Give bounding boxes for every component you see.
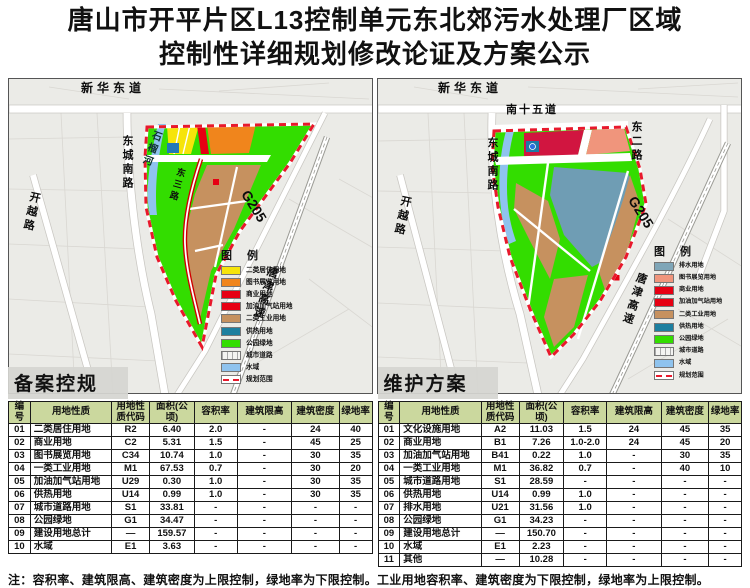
- legend-revised-plan: 图 例 排水用地图书展览用地商业用地加油加气站用地二类工业用地供热用地公园绿地城…: [654, 247, 742, 384]
- column-header: 容积率: [564, 401, 607, 424]
- table-cell: -: [194, 528, 237, 541]
- table-cell: 1.5: [564, 424, 607, 437]
- footnote: 注：容积率、建筑限高、建筑密度为上限控制，绿地率为下限控制。工业用地容积率、建筑…: [8, 571, 742, 588]
- table-cell: -: [709, 541, 742, 554]
- table-cell: -: [661, 476, 709, 489]
- table-cell: -: [237, 541, 292, 554]
- legend-item: 排水用地: [654, 262, 742, 271]
- table-cell: 07: [378, 502, 400, 515]
- table-cell: -: [339, 515, 372, 528]
- column-header: 编号: [378, 401, 400, 424]
- legend-label: 二类工业用地: [246, 316, 286, 323]
- legend-item: 城市道路: [221, 351, 367, 360]
- table-cell: -: [661, 541, 709, 554]
- table-cell: -: [661, 515, 709, 528]
- table-cell: -: [292, 541, 340, 554]
- table-cell: M1: [112, 463, 150, 476]
- table-cell: -: [607, 554, 662, 567]
- table-cell: 2.0: [194, 424, 237, 437]
- table-cell: 10.74: [150, 450, 195, 463]
- pump-station-marker: [530, 143, 536, 149]
- legend-item: 二类工业用地: [654, 310, 742, 319]
- table-cell: 35: [709, 424, 742, 437]
- legend-swatch-icon: [654, 274, 674, 283]
- table-cell: 20: [709, 437, 742, 450]
- table-cell: -: [339, 528, 372, 541]
- road-label-dongcheng-south: 东城南路: [486, 137, 497, 193]
- table-row: 04一类工业用地M167.530.7-3020: [9, 463, 373, 476]
- table-row: 07排水用地U2131.561.0---: [378, 502, 742, 515]
- table-row: 03图书展览用地C3410.741.0-3035: [9, 450, 373, 463]
- table-cell: 11: [378, 554, 400, 567]
- table-cell: -: [292, 528, 340, 541]
- table-cell: 07: [9, 502, 31, 515]
- table-row: 03加油加气站用地B410.221.0-3035: [378, 450, 742, 463]
- table-cell: 34.47: [150, 515, 195, 528]
- table-cell: G1: [481, 515, 519, 528]
- column-header: 面积(公顷): [519, 401, 564, 424]
- table-cell: E1: [481, 541, 519, 554]
- table-cell: 09: [378, 528, 400, 541]
- table-cell: 24: [607, 424, 662, 437]
- column-header: 建筑密度: [661, 401, 709, 424]
- table-cell: -: [237, 437, 292, 450]
- table-cell: -: [194, 541, 237, 554]
- table-cell: 0.99: [519, 489, 564, 502]
- table-title-filed-plan: 备案控规: [8, 367, 128, 399]
- legend-item: 公园绿地: [654, 335, 742, 344]
- table-cell: 35: [339, 450, 372, 463]
- legend-label: 公园绿地: [246, 340, 273, 347]
- table-cell: 31.56: [519, 502, 564, 515]
- table-cell: 45: [661, 437, 709, 450]
- legend-label: 二类工业用地: [679, 312, 716, 318]
- table-cell: 04: [9, 463, 31, 476]
- legend-label: 二类居住用地: [246, 267, 286, 274]
- table-cell: -: [194, 502, 237, 515]
- table-title-revised-plan: 维护方案: [378, 367, 498, 399]
- table-cell: 图书展览用地: [30, 450, 111, 463]
- legend-swatch-icon: [654, 286, 674, 295]
- legend-label: 排水用地: [679, 263, 704, 269]
- table-cell: E1: [112, 541, 150, 554]
- table-row: 02商业用地C25.311.5-4525: [9, 437, 373, 450]
- table-cell: -: [194, 515, 237, 528]
- table-cell: 0.7: [564, 463, 607, 476]
- table-cell: -: [607, 450, 662, 463]
- table-cell: 1.0: [194, 489, 237, 502]
- table-cell: 一类工业用地: [30, 463, 111, 476]
- legend-swatch-icon: [654, 323, 674, 332]
- legend-label: 城市道路: [246, 352, 273, 359]
- page-title-line2: 控制性详细规划修改论证及方案公示: [0, 38, 750, 72]
- table-cell: 建设用地总计: [30, 528, 111, 541]
- column-header: 用地性质: [400, 401, 481, 424]
- table-cell: -: [237, 450, 292, 463]
- table-cell: -: [564, 515, 607, 528]
- legend-swatch-icon: [221, 290, 241, 299]
- legend-label: 图书展览用地: [679, 275, 716, 281]
- column-header: 建筑密度: [292, 401, 340, 424]
- legend-item: 加油加气站用地: [221, 302, 367, 311]
- table-cell: -: [564, 528, 607, 541]
- table-cell: 05: [9, 476, 31, 489]
- column-header: 容积率: [194, 401, 237, 424]
- table-cell: -: [237, 424, 292, 437]
- legend-swatch-icon: [654, 335, 674, 344]
- table-cell: 01: [378, 424, 400, 437]
- table-cell: 09: [9, 528, 31, 541]
- table-cell: -: [237, 515, 292, 528]
- table-cell: 1.0: [194, 476, 237, 489]
- table-cell: 150.70: [519, 528, 564, 541]
- table-cell: -: [292, 502, 340, 515]
- table-cell: 商业用地: [400, 437, 481, 450]
- table-cell: -: [661, 528, 709, 541]
- table-cell: 02: [9, 437, 31, 450]
- table-cell: 6.40: [150, 424, 195, 437]
- table-cell: 34.23: [519, 515, 564, 528]
- table-cell: 加油加气站用地: [30, 476, 111, 489]
- table-cell: -: [237, 476, 292, 489]
- table-cell: -: [237, 463, 292, 476]
- legend-item: 图书展览用地: [221, 278, 367, 287]
- road-label-xinhua-east: 新华东道: [438, 82, 502, 94]
- table-row: 11其他—10.28----: [378, 554, 742, 567]
- table-header-row: 编号用地性质用地性质代码面积(公顷)容积率建筑限高建筑密度绿地率: [9, 401, 373, 424]
- legend-item: 图书展览用地: [654, 274, 742, 283]
- table-cell: 10: [9, 541, 31, 554]
- table-cell: 商业用地: [30, 437, 111, 450]
- legend-label: 公园绿地: [679, 336, 704, 342]
- table-cell: -: [607, 515, 662, 528]
- map-revised-plan: 新华东道 南十五道 东二路 东城南路 开越路 G205 唐津高速 图 例 排水用…: [377, 78, 742, 394]
- table-cell: —: [112, 528, 150, 541]
- table-cell: 30: [292, 463, 340, 476]
- column-header: 绿地率: [339, 401, 372, 424]
- legend-items: 排水用地图书展览用地商业用地加油加气站用地二类工业用地供热用地公园绿地城市道路水…: [654, 262, 742, 381]
- table-cell: 一类工业用地: [400, 463, 481, 476]
- table-cell: -: [709, 489, 742, 502]
- legend-label: 图书展览用地: [246, 279, 286, 286]
- table-cell: C2: [112, 437, 150, 450]
- maps-row: 新华东道 东城南路 石榴河 东三路 开越路 G205 唐津高速 图 例 二类居住…: [8, 78, 742, 394]
- table-cell: -: [339, 541, 372, 554]
- table-cell: 30: [292, 450, 340, 463]
- table-cell: 供热用地: [30, 489, 111, 502]
- table-row: 09建设用地总计—159.57----: [9, 528, 373, 541]
- table-cell: -: [607, 489, 662, 502]
- table-cell: -: [607, 528, 662, 541]
- legend-swatch-icon: [221, 278, 241, 287]
- page-title: 唐山市开平片区L13控制单元东北郊污水处理厂区域 控制性详细规划修改论证及方案公…: [0, 4, 750, 72]
- legend-label: 商业用地: [679, 287, 704, 293]
- table-row: 09建设用地总计—150.70----: [378, 528, 742, 541]
- table-cell: 35: [339, 489, 372, 502]
- table-row: 04一类工业用地M136.820.7-4010: [378, 463, 742, 476]
- table-cell: -: [607, 476, 662, 489]
- table-cell: 33.81: [150, 502, 195, 515]
- table-cell: 30: [661, 450, 709, 463]
- table-cell: 10.28: [519, 554, 564, 567]
- table-cell: 30: [292, 489, 340, 502]
- legend-item: 公园绿地: [221, 339, 367, 348]
- table-cell: 1.5: [194, 437, 237, 450]
- table-cell: 水域: [30, 541, 111, 554]
- table-row: 10水域E12.23----: [378, 541, 742, 554]
- table-cell: R2: [112, 424, 150, 437]
- table-cell: 159.57: [150, 528, 195, 541]
- table-cell: S1: [481, 476, 519, 489]
- table-cell: 30: [292, 476, 340, 489]
- table-cell: 36.82: [519, 463, 564, 476]
- table-cell: U29: [112, 476, 150, 489]
- table-row: 05加油加气站用地U290.301.0-3035: [9, 476, 373, 489]
- table-cell: 0.99: [150, 489, 195, 502]
- table-header-row: 编号用地性质用地性质代码面积(公顷)容积率建筑限高建筑密度绿地率: [378, 401, 742, 424]
- table-row: 02商业用地B17.261.0-2.0244520: [378, 437, 742, 450]
- table-cell: 02: [378, 437, 400, 450]
- table-cell: -: [564, 554, 607, 567]
- table-cell: 25: [339, 437, 372, 450]
- table-cell: 1.0: [194, 450, 237, 463]
- legend-label: 商业用地: [246, 291, 273, 298]
- table-cell: 40: [661, 463, 709, 476]
- table-cell: 28.59: [519, 476, 564, 489]
- table-cell: 其他: [400, 554, 481, 567]
- table-cell: 1.0-2.0: [564, 437, 607, 450]
- table-cell: U21: [481, 502, 519, 515]
- page-title-line1: 唐山市开平片区L13控制单元东北郊污水处理厂区域: [0, 4, 750, 38]
- column-header: 绿地率: [709, 401, 742, 424]
- table-cell: -: [661, 502, 709, 515]
- table-cell: 40: [339, 424, 372, 437]
- table-cell: B1: [481, 437, 519, 450]
- tables-row: 备案控规 编号用地性质用地性质代码面积(公顷)容积率建筑限高建筑密度绿地率 01…: [8, 367, 742, 568]
- table-cell: 08: [9, 515, 31, 528]
- map-filed-plan: 新华东道 东城南路 石榴河 东三路 开越路 G205 唐津高速 图 例 二类居住…: [8, 78, 373, 394]
- table-row: 06供热用地U140.991.0---: [378, 489, 742, 502]
- table-cell: -: [709, 554, 742, 567]
- legend-swatch-icon: [221, 302, 241, 311]
- page: 唐山市开平片区L13控制单元东北郊污水处理厂区域 控制性详细规划修改论证及方案公…: [0, 4, 750, 588]
- table-cell: 2.23: [519, 541, 564, 554]
- legend-swatch-icon: [654, 310, 674, 319]
- table-row: 08公园绿地G134.23----: [378, 515, 742, 528]
- table-cell: -: [292, 515, 340, 528]
- table-cell: -: [237, 528, 292, 541]
- legend-swatch-icon: [654, 347, 674, 356]
- table-cell: 35: [709, 450, 742, 463]
- column-header: 面积(公顷): [150, 401, 195, 424]
- column-header: 用地性质代码: [481, 401, 519, 424]
- table-cell: 建设用地总计: [400, 528, 481, 541]
- table-cell: C34: [112, 450, 150, 463]
- table-row: 01二类居住用地R26.402.0-2440: [9, 424, 373, 437]
- column-header: 编号: [9, 401, 31, 424]
- table-cell: S1: [112, 502, 150, 515]
- table-cell: 01: [9, 424, 31, 437]
- legend-item: 二类工业用地: [221, 314, 367, 323]
- table-cell: -: [237, 502, 292, 515]
- table-cell: 5.31: [150, 437, 195, 450]
- legend-swatch-icon: [221, 351, 241, 360]
- filed-plan-section: 备案控规 编号用地性质用地性质代码面积(公顷)容积率建筑限高建筑密度绿地率 01…: [8, 367, 373, 568]
- table-cell: —: [481, 528, 519, 541]
- table-cell: 10: [378, 541, 400, 554]
- legend-item: 供热用地: [654, 323, 742, 332]
- legend-item: 商业用地: [654, 286, 742, 295]
- legend-item: 商业用地: [221, 290, 367, 299]
- legend-swatch-icon: [654, 262, 674, 271]
- table-cell: 1.0: [564, 489, 607, 502]
- legend-title: 图 例: [221, 251, 367, 262]
- table-cell: 11.03: [519, 424, 564, 437]
- legend-swatch-icon: [221, 339, 241, 348]
- table-cell: 供热用地: [400, 489, 481, 502]
- table-cell: 1.0: [564, 502, 607, 515]
- table-cell: -: [709, 502, 742, 515]
- table-cell: 20: [339, 463, 372, 476]
- table-row: 10水域E13.63----: [9, 541, 373, 554]
- table-cell: -: [237, 489, 292, 502]
- table-row: 05城市道路用地S128.59----: [378, 476, 742, 489]
- road-label-dong-2: 东二路: [630, 121, 641, 163]
- table-cell: -: [607, 463, 662, 476]
- table-cell: 03: [9, 450, 31, 463]
- table-row: 07城市道路用地S133.81----: [9, 502, 373, 515]
- column-header: 用地性质: [30, 401, 111, 424]
- road-label-south-15: 南十五道: [506, 105, 558, 116]
- table-cell: 加油加气站用地: [400, 450, 481, 463]
- legend-item: 加油加气站用地: [654, 298, 742, 307]
- table-cell: M1: [481, 463, 519, 476]
- table-cell: 24: [607, 437, 662, 450]
- legend-swatch-icon: [221, 314, 241, 323]
- table-cell: 公园绿地: [30, 515, 111, 528]
- filed-plan-table: 编号用地性质用地性质代码面积(公顷)容积率建筑限高建筑密度绿地率 01二类居住用…: [8, 401, 373, 555]
- table-cell: 1.0: [564, 450, 607, 463]
- table-cell: 06: [378, 489, 400, 502]
- table-cell: 03: [378, 450, 400, 463]
- table-cell: -: [709, 515, 742, 528]
- revised-plan-table: 编号用地性质用地性质代码面积(公顷)容积率建筑限高建筑密度绿地率 01文化设施用…: [378, 401, 743, 568]
- table-cell: 05: [378, 476, 400, 489]
- legend-label: 城市道路: [679, 348, 704, 354]
- table-cell: 3.63: [150, 541, 195, 554]
- legend-label: 加油加气站用地: [246, 303, 293, 310]
- table-cell: B41: [481, 450, 519, 463]
- table-cell: 7.26: [519, 437, 564, 450]
- legend-label: 加油加气站用地: [679, 300, 722, 306]
- table-cell: 0.7: [194, 463, 237, 476]
- table-cell: A2: [481, 424, 519, 437]
- table-cell: 67.53: [150, 463, 195, 476]
- table-cell: 公园绿地: [400, 515, 481, 528]
- table-cell: 文化设施用地: [400, 424, 481, 437]
- table-cell: 24: [292, 424, 340, 437]
- table-row: 08公园绿地G134.47----: [9, 515, 373, 528]
- table-cell: G1: [112, 515, 150, 528]
- table-cell: 10: [709, 463, 742, 476]
- table-cell: 二类居住用地: [30, 424, 111, 437]
- table-cell: -: [564, 476, 607, 489]
- column-header: 用地性质代码: [112, 401, 150, 424]
- table-cell: 0.22: [519, 450, 564, 463]
- table-cell: 城市道路用地: [400, 476, 481, 489]
- revised-plan-section: 维护方案 编号用地性质用地性质代码面积(公顷)容积率建筑限高建筑密度绿地率 01…: [378, 367, 743, 568]
- legend-item: 供热用地: [221, 327, 367, 336]
- table-cell: —: [481, 554, 519, 567]
- table-cell: 08: [378, 515, 400, 528]
- table-cell: 0.30: [150, 476, 195, 489]
- table-cell: -: [607, 541, 662, 554]
- legend-swatch-icon: [221, 327, 241, 336]
- table-cell: 45: [661, 424, 709, 437]
- table-cell: -: [661, 489, 709, 502]
- table-cell: 06: [9, 489, 31, 502]
- table-cell: -: [661, 554, 709, 567]
- table-cell: 35: [339, 476, 372, 489]
- table-cell: -: [339, 502, 372, 515]
- road-label-xinhua-east: 新华东道: [81, 82, 145, 94]
- legend-item: 二类居住用地: [221, 266, 367, 275]
- table-row: 01文化设施用地A211.031.5244535: [378, 424, 742, 437]
- legend-label: 供热用地: [246, 328, 273, 335]
- table-cell: 排水用地: [400, 502, 481, 515]
- table-cell: -: [709, 476, 742, 489]
- table-row: 06供热用地U140.991.0-3035: [9, 489, 373, 502]
- legend-label: 供热用地: [679, 324, 704, 330]
- table-cell: U14: [112, 489, 150, 502]
- legend-swatch-icon: [221, 266, 241, 275]
- table-cell: 城市道路用地: [30, 502, 111, 515]
- table-cell: -: [564, 541, 607, 554]
- road-label-dongcheng-south: 东城南路: [121, 135, 132, 191]
- table-cell: U14: [481, 489, 519, 502]
- table-cell: 04: [378, 463, 400, 476]
- table-cell: -: [607, 502, 662, 515]
- table-cell: -: [709, 528, 742, 541]
- table-cell: 水域: [400, 541, 481, 554]
- column-header: 建筑限高: [237, 401, 292, 424]
- legend-item: 城市道路: [654, 347, 742, 356]
- legend-title: 图 例: [654, 247, 742, 258]
- legend-swatch-icon: [654, 298, 674, 307]
- table-cell: 45: [292, 437, 340, 450]
- column-header: 建筑限高: [607, 401, 662, 424]
